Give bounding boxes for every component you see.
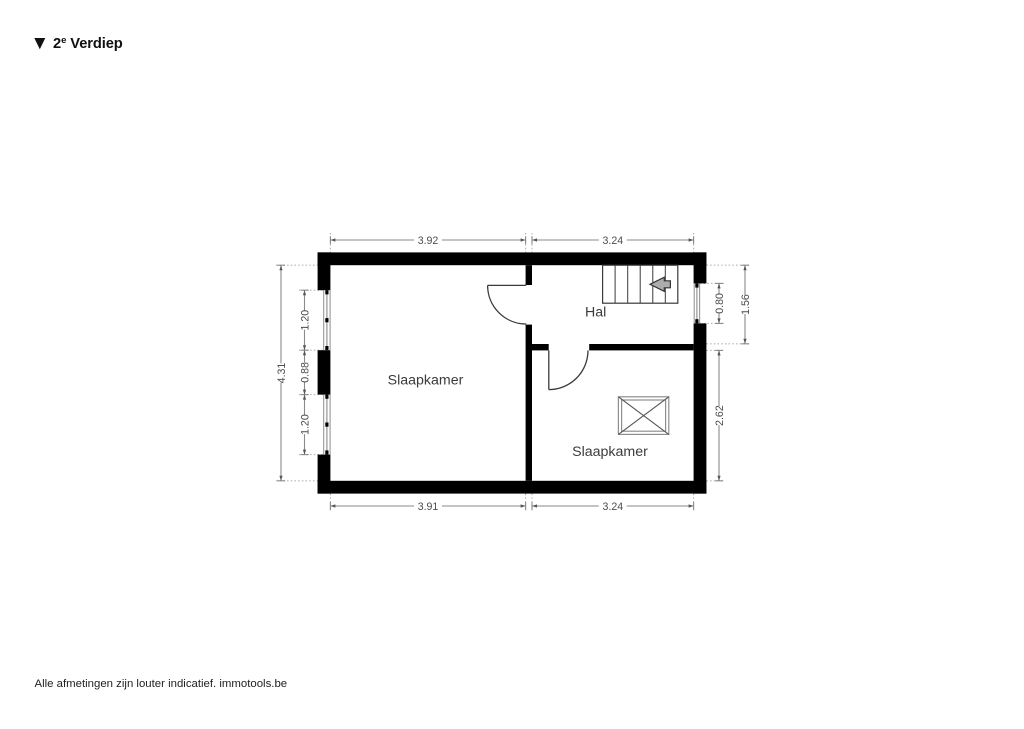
- svg-text:3.24: 3.24: [602, 501, 623, 513]
- svg-text:3.24: 3.24: [602, 235, 623, 247]
- svg-text:2.62: 2.62: [714, 405, 726, 426]
- svg-text:0.88: 0.88: [299, 362, 311, 383]
- svg-text:3.91: 3.91: [418, 501, 439, 513]
- svg-text:Slaapkamer: Slaapkamer: [388, 373, 464, 389]
- svg-text:0.80: 0.80: [714, 293, 726, 314]
- svg-text:Slaapkamer: Slaapkamer: [572, 444, 648, 460]
- svg-text:1.20: 1.20: [299, 414, 311, 435]
- svg-text:3.92: 3.92: [418, 235, 439, 247]
- svg-text:Hal: Hal: [585, 304, 606, 320]
- svg-text:1.56: 1.56: [740, 294, 752, 315]
- svg-text:Alle afmetingen zijn louter in: Alle afmetingen zijn louter indicatief. …: [35, 678, 288, 690]
- svg-text:1.20: 1.20: [299, 310, 311, 331]
- svg-text:4.31: 4.31: [276, 363, 288, 384]
